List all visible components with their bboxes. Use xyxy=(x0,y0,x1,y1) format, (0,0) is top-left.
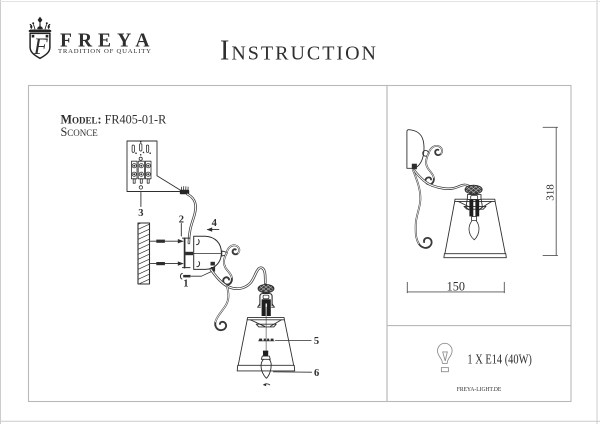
svg-text:Instruction: Instruction xyxy=(220,35,376,66)
svg-text:3: 3 xyxy=(138,208,143,219)
svg-text:150: 150 xyxy=(447,279,465,293)
svg-text:1 X E14 (40W): 1 X E14 (40W) xyxy=(467,352,532,367)
svg-text:318: 318 xyxy=(545,184,557,201)
svg-text:FREYA-LIGHT.DE: FREYA-LIGHT.DE xyxy=(457,386,502,393)
svg-text:1: 1 xyxy=(183,279,188,290)
svg-text:4: 4 xyxy=(212,218,218,229)
svg-text:F: F xyxy=(33,34,49,59)
svg-text:6: 6 xyxy=(314,368,319,379)
svg-text:Sconce: Sconce xyxy=(61,125,99,139)
svg-text:5: 5 xyxy=(314,336,319,347)
svg-text:TRADITION OF QUALITY: TRADITION OF QUALITY xyxy=(58,48,151,55)
svg-text:2: 2 xyxy=(179,214,184,225)
